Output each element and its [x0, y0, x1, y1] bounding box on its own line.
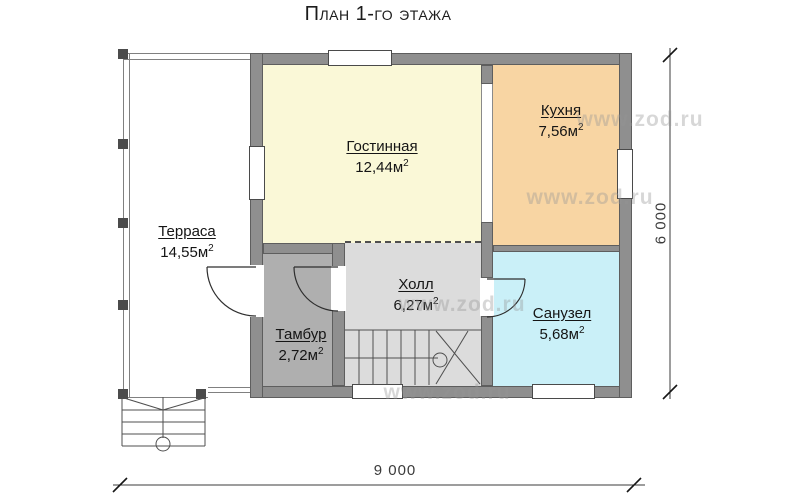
room-name: Кухня [501, 102, 621, 119]
room-label-bathroom: Санузел 5,68м2 [502, 305, 622, 343]
linework-overlay [0, 0, 795, 496]
room-area: 7,56м2 [501, 119, 621, 140]
room-label-kitchen: Кухня 7,56м2 [501, 102, 621, 140]
room-name: Терраса [127, 223, 247, 240]
room-area: 6,27м2 [356, 293, 476, 314]
room-label-tambour: Тамбур 2,72м2 [241, 326, 361, 364]
room-area: 14,55м2 [127, 240, 247, 261]
room-label-living: Гостинная 12,44м2 [322, 138, 442, 176]
room-label-hall: Холл 6,27м2 [356, 276, 476, 314]
room-name: Санузел [502, 305, 622, 322]
room-label-terrace: Терраса 14,55м2 [127, 223, 247, 261]
porch-steps [122, 397, 205, 451]
staircase [345, 330, 481, 385]
room-name: Гостинная [322, 138, 442, 155]
door-swing-arc [294, 267, 338, 311]
room-area: 12,44м2 [322, 155, 442, 176]
floor-plan: План 1-го этажа [0, 0, 795, 496]
room-name: Холл [356, 276, 476, 293]
door-swing-arc [207, 267, 256, 316]
door-terrace-tambour [207, 267, 256, 316]
stair-break-line [436, 331, 480, 384]
room-area: 2,72м2 [241, 343, 361, 364]
porch-post [156, 437, 170, 451]
room-name: Тамбур [241, 326, 361, 343]
dimension-width: 9 000 [374, 462, 417, 479]
door-tambour-hall [294, 267, 338, 311]
room-area: 5,68м2 [502, 322, 622, 343]
stair-post [433, 353, 447, 367]
dimension-height: 6 000 [653, 202, 670, 245]
stair-break-line [436, 331, 468, 384]
